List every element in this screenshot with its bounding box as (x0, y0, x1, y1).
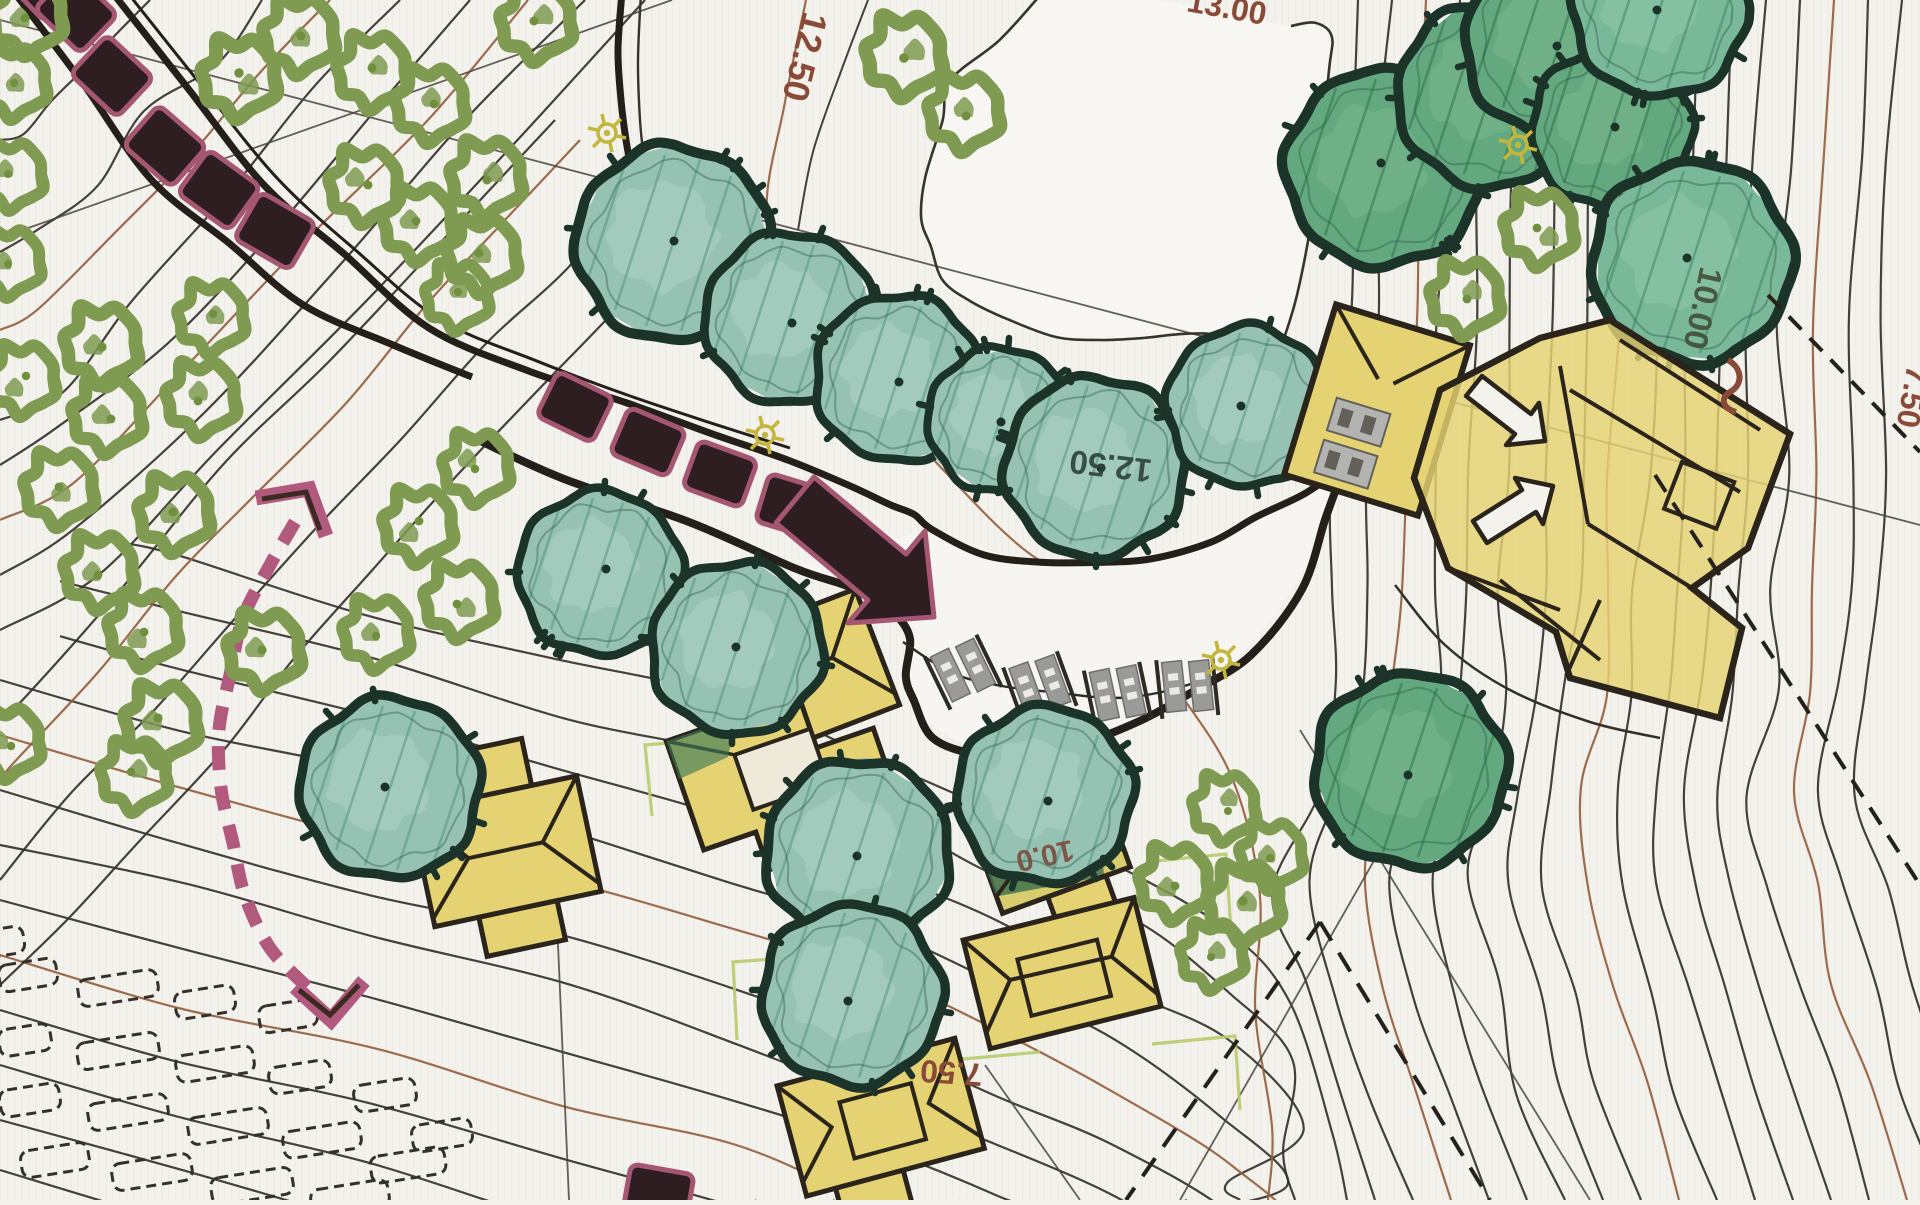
svg-text:7.50: 7.50 (919, 1053, 984, 1093)
